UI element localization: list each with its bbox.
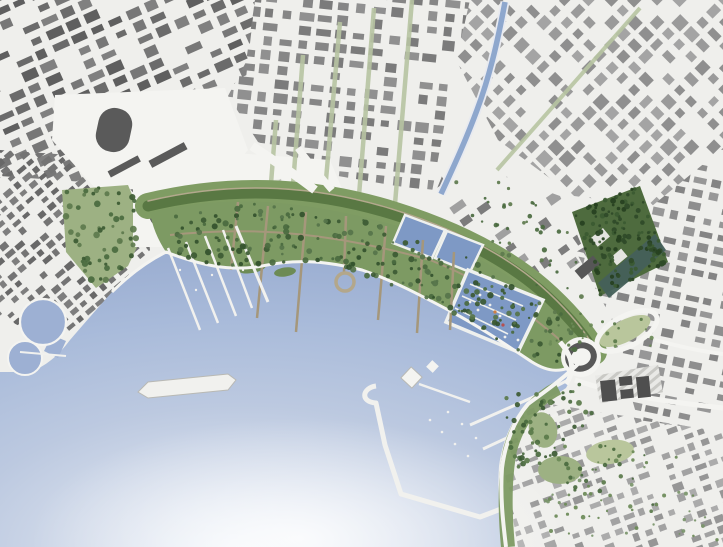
boat-red bbox=[501, 323, 504, 326]
masterplan-map bbox=[0, 0, 723, 547]
boat-orange bbox=[493, 310, 496, 313]
